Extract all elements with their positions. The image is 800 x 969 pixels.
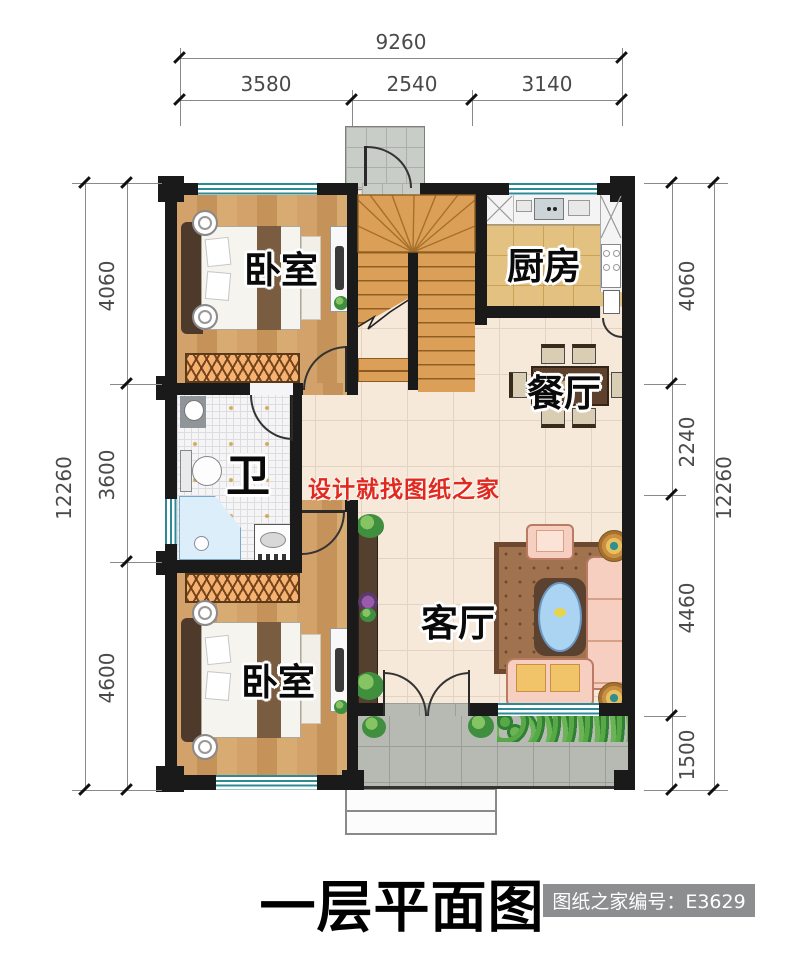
bed-headboard-bottom [181, 618, 203, 742]
living-bottom-wall [600, 703, 628, 716]
window-living [497, 703, 600, 716]
pilaster [158, 176, 184, 202]
burner [613, 264, 620, 271]
extension-line [110, 562, 162, 563]
living-bottom-wall [470, 703, 497, 716]
label-bedroom-bottom: 卧室 [241, 652, 315, 706]
burner [613, 250, 620, 257]
plant-small [334, 700, 348, 714]
pilaster [614, 770, 635, 790]
interior-wall-bedroom-bottom-right [347, 500, 358, 775]
dim-top-total: 9260 [361, 30, 441, 54]
bedside-lamp [192, 734, 218, 760]
dim-right-total: 12260 [712, 448, 736, 528]
page-title: 一层平面图 [260, 863, 545, 944]
plant-small [334, 296, 348, 310]
kitchen-tray [568, 200, 590, 216]
dim-top-seg2: 2540 [372, 72, 452, 96]
door-leaf-bedroom-top [345, 346, 347, 392]
bedside-lamp [192, 210, 218, 236]
fruit-dish [554, 608, 566, 617]
extension-line [644, 183, 728, 184]
tv-on-dresser [335, 648, 344, 692]
tv-on-dresser [335, 246, 344, 290]
faucet-dot [553, 207, 557, 211]
dim-line-top-segments [180, 100, 622, 101]
toilet-tank [180, 450, 192, 492]
dining-chair [572, 344, 596, 364]
coffee-table-glass [538, 582, 582, 652]
faucet-dot [547, 207, 551, 211]
stamp-badge: 图纸之家编号：E3629 [543, 884, 755, 917]
exterior-wall-right [622, 183, 635, 716]
sofa-cushion [516, 664, 546, 692]
dining-chair [541, 344, 565, 364]
label-dining: 餐厅 [527, 363, 601, 417]
plant [354, 672, 384, 700]
label-bedroom-top: 卧室 [244, 240, 318, 294]
bed-pillow [205, 671, 231, 701]
extension-line [644, 384, 686, 385]
extension-line [644, 495, 686, 496]
pilaster [156, 766, 184, 792]
kitchen-corner-cabinet [487, 195, 514, 223]
entry-step-line [345, 810, 497, 812]
plant [356, 514, 384, 538]
bedside-lamp [192, 600, 218, 626]
bed-pillow [205, 237, 232, 267]
label-bathroom: 卫 [226, 440, 270, 504]
pilaster [156, 376, 177, 400]
bed-pillow [205, 635, 232, 665]
pilaster [610, 176, 635, 202]
toilet-bowl [192, 456, 222, 486]
interior-wall-stair-left [347, 190, 358, 395]
dining-chair [509, 372, 527, 398]
interior-wall-bedroom-top-bottom [165, 383, 250, 395]
door-gap-bathroom [250, 383, 293, 395]
bedside-lamp [192, 304, 218, 330]
door-leaf-bedroom-bottom [302, 510, 345, 513]
stair-divider-wall [408, 252, 418, 390]
dim-top-seg1: 3580 [226, 72, 306, 96]
porch-edge [353, 786, 635, 789]
dim-right-seg2: 2240 [675, 402, 699, 482]
stair-first-step [358, 358, 412, 382]
door-leaf-kitchen [603, 290, 620, 314]
dim-line-top-total [180, 58, 622, 59]
bed-pillow [205, 271, 231, 301]
interior-wall-kitchen-bottom [475, 306, 600, 318]
label-living: 客厅 [421, 593, 495, 647]
dim-right-seg4: 1500 [675, 715, 699, 795]
floor-plan-canvas: 卧室 厨房 餐厅 卫 客厅 卧室 设计就找图纸之家 9260 3580 2540… [0, 0, 800, 969]
burner [603, 250, 610, 257]
shower-drain [194, 536, 209, 551]
kitchen-tray [516, 200, 532, 212]
bush [468, 714, 494, 738]
wardrobe-bedroom-top [185, 353, 300, 383]
label-kitchen: 厨房 [507, 236, 581, 290]
dim-line-right-segments [672, 183, 673, 790]
washing-machine-drum [260, 532, 286, 548]
dim-left-total: 12260 [52, 448, 76, 528]
dim-left-seg2: 3600 [95, 435, 119, 515]
interior-wall-kitchen-left [475, 190, 487, 325]
window-bedroom-bottom [215, 775, 318, 790]
corner-sink-bowl [184, 400, 204, 421]
door-leaf-bathroom [291, 395, 293, 441]
extension-line [622, 48, 623, 126]
extension-line [110, 384, 162, 385]
watermark-text: 设计就找图纸之家 [308, 470, 500, 504]
armchair-cushion [536, 530, 564, 552]
interior-wall-bath-bottom [165, 560, 302, 573]
dim-left-seg3: 4600 [95, 638, 119, 718]
window-bathroom [165, 498, 177, 545]
wardrobe-bedroom-bottom [185, 573, 300, 603]
extension-line [180, 48, 181, 126]
dim-right-seg1: 4060 [675, 246, 699, 326]
plant [360, 608, 376, 622]
hedge-strip [497, 712, 628, 742]
window-bedroom-top [197, 183, 318, 195]
exterior-wall-left [165, 183, 177, 790]
dim-left-seg1: 4060 [95, 246, 119, 326]
bush [362, 716, 386, 738]
window-kitchen [508, 183, 598, 195]
stair-winders [358, 195, 475, 252]
burner [603, 264, 610, 271]
stair-flight-down [418, 252, 475, 392]
dim-right-seg3: 4460 [675, 568, 699, 648]
interior-wall-bedroom-top-bottom [293, 383, 303, 395]
dim-line-left-total [85, 183, 86, 790]
sofa-cushion [550, 664, 580, 692]
pilaster [156, 551, 177, 575]
door-leaf-main-right [468, 670, 470, 716]
dim-top-seg3: 3140 [507, 72, 587, 96]
dim-line-left-segments [127, 183, 128, 790]
